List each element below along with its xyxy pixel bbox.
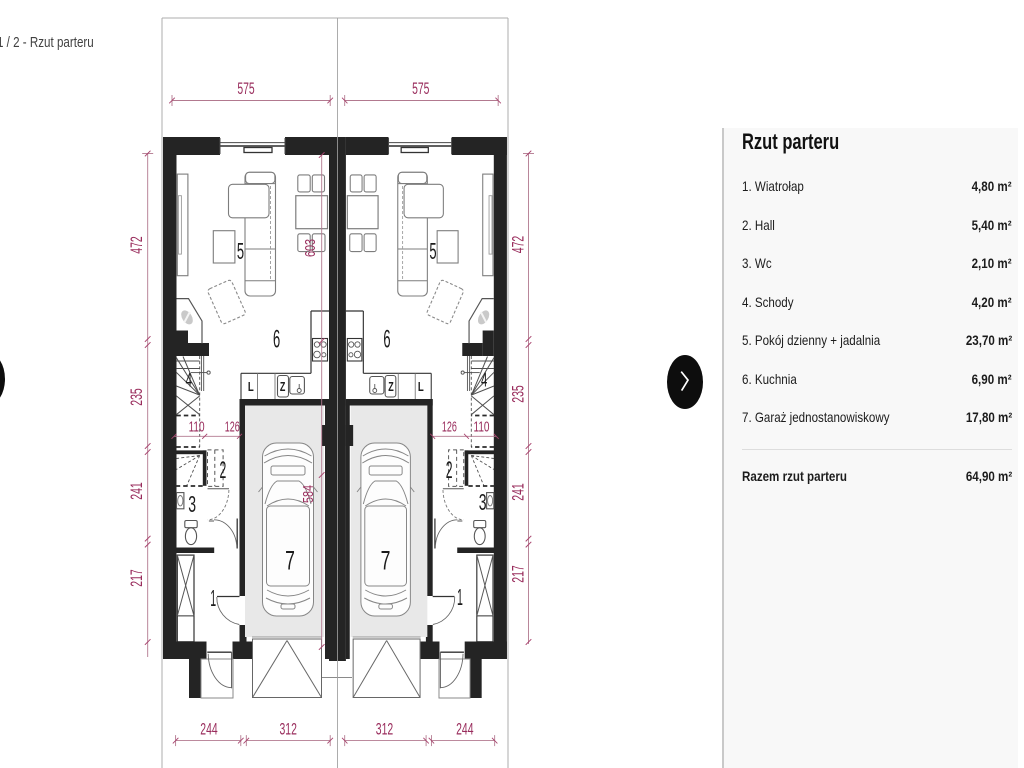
svg-text:126: 126 (442, 420, 457, 436)
svg-text:Z: Z (388, 379, 394, 394)
svg-text:1: 1 (210, 585, 216, 611)
svg-text:472: 472 (127, 236, 146, 254)
svg-text:575: 575 (412, 80, 429, 98)
svg-text:244: 244 (456, 721, 473, 739)
svg-text:2: 2 (220, 457, 227, 484)
svg-text:2: 2 (446, 457, 453, 484)
svg-text:5: 5 (237, 238, 244, 264)
svg-text:Z: Z (280, 379, 286, 394)
svg-text:312: 312 (376, 721, 393, 739)
svg-text:4: 4 (186, 370, 192, 392)
svg-text:7: 7 (285, 546, 295, 576)
svg-text:3: 3 (188, 491, 196, 517)
svg-text:110: 110 (189, 420, 205, 436)
svg-text:244: 244 (200, 721, 217, 739)
svg-text:241: 241 (509, 483, 528, 501)
svg-text:312: 312 (280, 721, 297, 739)
svg-text:235: 235 (127, 388, 146, 406)
svg-text:3: 3 (479, 489, 487, 515)
svg-text:241: 241 (127, 482, 146, 500)
svg-text:217: 217 (127, 569, 146, 587)
svg-text:126: 126 (225, 420, 240, 436)
svg-text:603: 603 (302, 239, 319, 257)
svg-text:110: 110 (474, 420, 490, 436)
svg-text:472: 472 (509, 236, 528, 254)
svg-text:L: L (418, 379, 424, 394)
svg-text:6: 6 (273, 326, 280, 354)
svg-text:1: 1 (457, 584, 463, 610)
svg-text:584: 584 (300, 485, 317, 503)
svg-text:4: 4 (481, 370, 487, 392)
svg-text:217: 217 (509, 565, 528, 583)
svg-text:235: 235 (509, 385, 528, 403)
svg-text:L: L (248, 379, 254, 394)
svg-text:6: 6 (383, 326, 390, 354)
svg-text:7: 7 (381, 546, 391, 576)
svg-text:575: 575 (237, 80, 254, 98)
svg-text:5: 5 (429, 238, 436, 264)
